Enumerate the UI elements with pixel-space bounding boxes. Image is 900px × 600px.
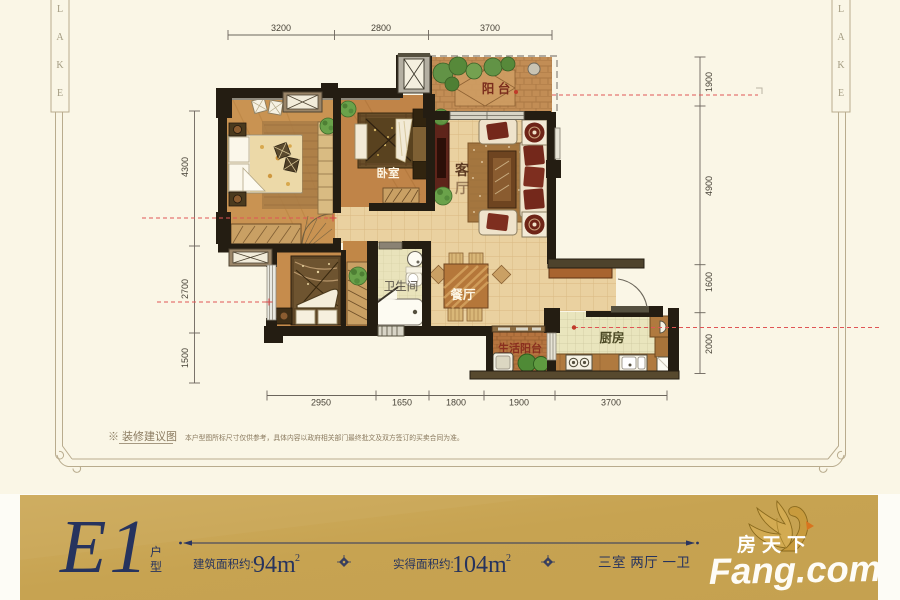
svg-text:卫生间: 卫生间 [384, 279, 419, 293]
svg-text:A: A [56, 32, 64, 43]
svg-text:厅: 厅 [455, 180, 469, 196]
svg-text:2: 2 [506, 553, 511, 564]
svg-text:1600: 1600 [704, 272, 714, 292]
svg-text:1800: 1800 [446, 398, 466, 408]
svg-text:※ 装修建议图: ※ 装修建议图 [108, 429, 177, 443]
svg-text:本户型图所标尺寸仅供参考，具体内容以政府相关部门最终批文及双: 本户型图所标尺寸仅供参考，具体内容以政府相关部门最终批文及双方签订的买卖合同为准… [185, 433, 464, 442]
svg-text:客: 客 [454, 162, 470, 178]
svg-text:104m: 104m [452, 552, 507, 578]
svg-text:户: 户 [150, 544, 162, 559]
svg-text:E1: E1 [59, 505, 150, 589]
svg-text:K: K [837, 60, 845, 71]
svg-text:2700: 2700 [180, 279, 190, 299]
svg-text:L: L [838, 4, 844, 15]
svg-text:1650: 1650 [392, 398, 412, 408]
svg-text:2950: 2950 [311, 398, 331, 408]
svg-text:卧室: 卧室 [377, 166, 400, 180]
svg-text:2: 2 [295, 553, 300, 564]
svg-text:三室 两厅 一卫: 三室 两厅 一卫 [598, 554, 691, 570]
svg-text:3200: 3200 [271, 23, 291, 33]
svg-text:4300: 4300 [180, 157, 190, 177]
svg-text:L: L [57, 4, 63, 15]
svg-text:3700: 3700 [601, 398, 621, 408]
svg-text:E: E [57, 88, 63, 99]
svg-text:实得面积约:: 实得面积约: [393, 557, 454, 571]
svg-text:3700: 3700 [480, 23, 500, 33]
svg-text:4900: 4900 [704, 176, 714, 196]
svg-text:建筑面积约:: 建筑面积约: [193, 557, 254, 571]
svg-text:Fang.com: Fang.com [708, 548, 881, 592]
svg-text:阳 台: 阳 台 [482, 81, 510, 96]
svg-text:A: A [837, 32, 845, 43]
svg-text:1900: 1900 [704, 72, 714, 92]
svg-text:K: K [56, 60, 64, 71]
svg-text:型: 型 [150, 560, 162, 574]
svg-text:E: E [838, 88, 844, 99]
svg-text:2800: 2800 [371, 23, 391, 33]
svg-text:1900: 1900 [509, 398, 529, 408]
svg-text:1500: 1500 [180, 348, 190, 368]
svg-text:94m: 94m [253, 552, 296, 578]
svg-text:餐厅: 餐厅 [449, 287, 476, 302]
svg-text:2000: 2000 [704, 334, 714, 354]
svg-text:厨房: 厨房 [599, 330, 624, 345]
